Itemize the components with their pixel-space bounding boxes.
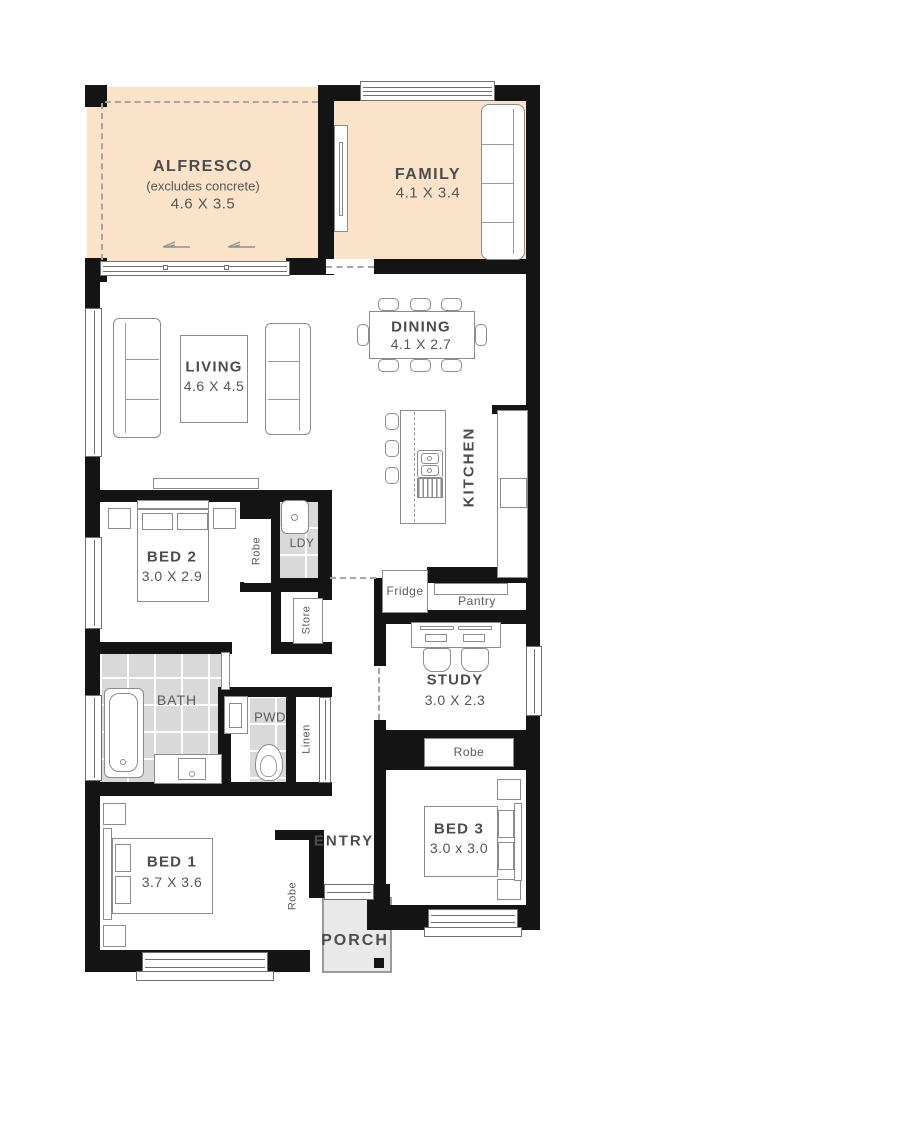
bedside-table-icon [497,879,521,900]
pwd-vanity-icon [224,696,248,734]
pillow-icon [115,876,131,904]
window-study-right [526,646,542,716]
study-label: STUDY [427,673,484,688]
family-dims: 4.1 X 3.4 [396,186,461,201]
sliding-door-arrow-icon [160,240,192,252]
dining-chair-icon [357,324,369,346]
bed2-label: BED 2 [147,550,197,565]
family-opening-dashed-line [326,266,374,268]
kitchen-label: KITCHEN [462,427,477,508]
door-track-clip [163,265,168,270]
window-bed2-left [85,537,102,629]
bedside-table-icon [108,508,131,529]
console-table-icon [153,478,259,489]
sofa-icon [265,323,311,435]
door-track-clip [224,265,229,270]
bed1-dims: 3.7 X 3.6 [142,875,203,889]
porch-pier [374,958,384,968]
bed1-label: BED 1 [147,855,197,870]
window-bed3-sill [424,927,522,937]
toilet-icon [255,744,283,781]
robe-bed2-label: Robe [252,537,263,565]
alfresco-dashed-boundary-top [105,101,318,103]
wall [271,578,332,592]
robe-bed3-label: Robe [454,746,485,758]
sliding-door-arrow-icon [225,240,257,252]
bed-headboard-icon [514,803,522,881]
pillow-icon [142,513,173,530]
dining-chair-icon [441,298,462,311]
entry-label: ENTRY [314,834,374,849]
dining-chair-icon [378,359,399,372]
bed3-label: BED 3 [434,822,484,837]
wall [374,624,386,666]
cooktop-icon [500,478,527,508]
family-label: FAMILY [395,167,461,183]
bathtub-icon [104,688,144,778]
linen-label: Linen [302,724,313,753]
store-label: Store [302,606,313,635]
sofa-icon [481,104,525,260]
front-door [324,884,374,900]
wall [85,85,107,107]
bedside-table-icon [497,779,521,800]
bed2-dims: 3.0 X 2.9 [142,569,203,583]
living-label: LIVING [185,360,242,375]
pillow-icon [177,513,208,530]
window-bed1-sill [136,971,274,981]
pwd-label: PWD [254,711,286,724]
window-living-left [85,308,102,457]
window-bath-left [85,695,102,781]
alfresco-note: (excludes concrete) [146,180,259,193]
dining-label: DINING [391,320,451,335]
alfresco-label: ALFRESCO [153,159,253,175]
bedside-table-icon [103,925,126,947]
alfresco-floor [87,87,318,263]
fridge-label: Fridge [386,585,423,597]
pillow-icon [498,842,514,870]
wall [97,642,232,654]
dining-chair-icon [475,324,487,346]
dining-chair-icon [410,298,431,311]
study-desk-icon [411,622,501,648]
sofa-icon [113,318,161,438]
alfresco-stacker-door [100,261,290,276]
laundry-tub-icon [281,500,309,534]
bath-door [221,652,230,690]
bed3-dims: 3.0 x 3.0 [430,841,488,855]
desk-chair-icon [423,648,451,672]
bedside-table-icon [103,803,126,825]
window-family-top [360,81,495,101]
wall [85,782,332,796]
dining-chair-icon [378,298,399,311]
wall [318,85,334,275]
wall [374,259,526,274]
porch-label: PORCH [321,933,389,949]
alfresco-dims: 4.6 X 3.5 [171,197,236,212]
wall [286,258,322,275]
alfresco-dashed-boundary-left [101,103,103,260]
island-bench-dashed-edge [414,412,415,522]
study-dims: 3.0 X 2.3 [425,693,486,707]
laundry-label: LDY [290,537,315,549]
stool-icon [385,440,399,457]
floor-plan: ALFRESCO (excludes concrete) 4.6 X 3.5 F… [0,0,912,1141]
study-opening-dashed-line [378,668,380,720]
stool-icon [385,413,399,430]
kitchen-drainer-icon [417,478,443,498]
dining-dims: 4.1 X 2.7 [391,337,452,351]
living-dims: 4.6 X 4.5 [184,379,245,393]
window-bed3-bottom [428,909,518,928]
robe-bed1-label: Robe [288,882,299,910]
dining-chair-icon [441,359,462,372]
linen-doors [319,697,331,783]
bath-label: BATH [157,693,197,707]
wall [526,85,540,930]
pantry-label: Pantry [458,595,496,607]
bath-vanity-icon [154,754,222,784]
bedside-table-icon [213,508,236,529]
bed-headboard-icon [137,500,209,509]
kitchen-sink-icon [417,450,443,478]
tv-unit-icon [334,125,348,232]
desk-chair-icon [461,648,489,672]
pillow-icon [498,810,514,838]
kitchen-hall-dashed-line [330,577,376,579]
bed-headboard-icon [103,828,112,920]
pillow-icon [115,844,131,872]
stool-icon [385,467,399,484]
dining-chair-icon [410,359,431,372]
wall [286,692,296,784]
